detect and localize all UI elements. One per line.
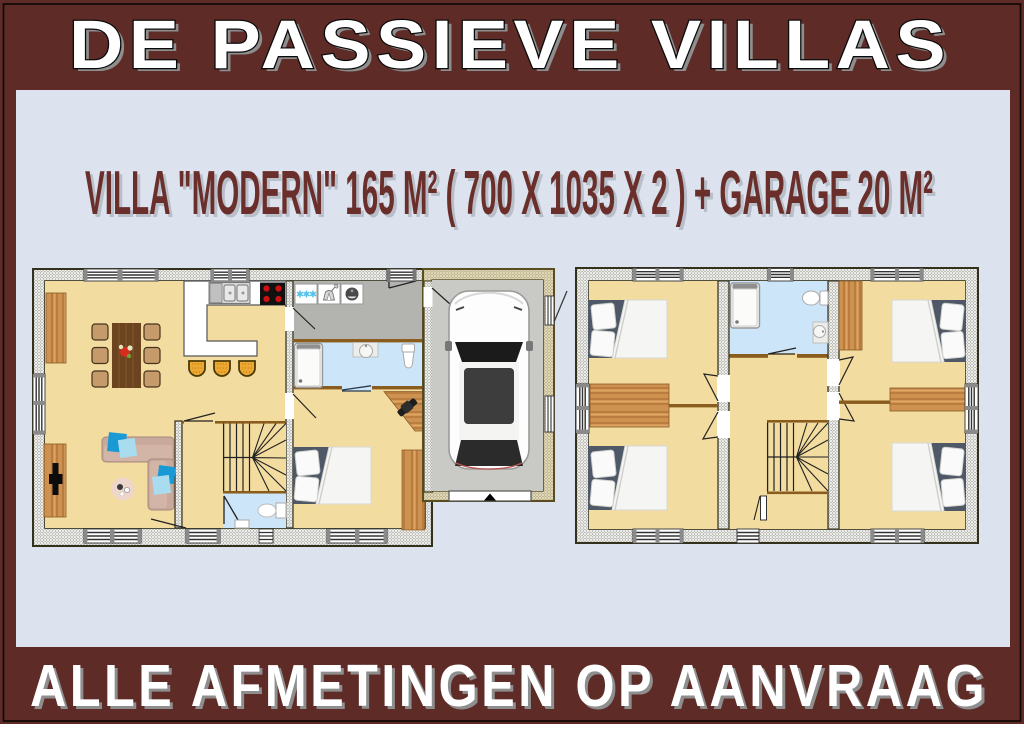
svg-text:VILLA "MODERN" 165 M² ( 700 X: VILLA "MODERN" 165 M² ( 700 X 1035 X 2 )… (85, 159, 933, 228)
svg-text:ALLE AFMETINGEN OP AANVRAAG: ALLE AFMETINGEN OP AANVRAAG (30, 653, 988, 719)
svg-text:DE PASSIEVE VILLAS: DE PASSIEVE VILLAS (69, 6, 951, 83)
